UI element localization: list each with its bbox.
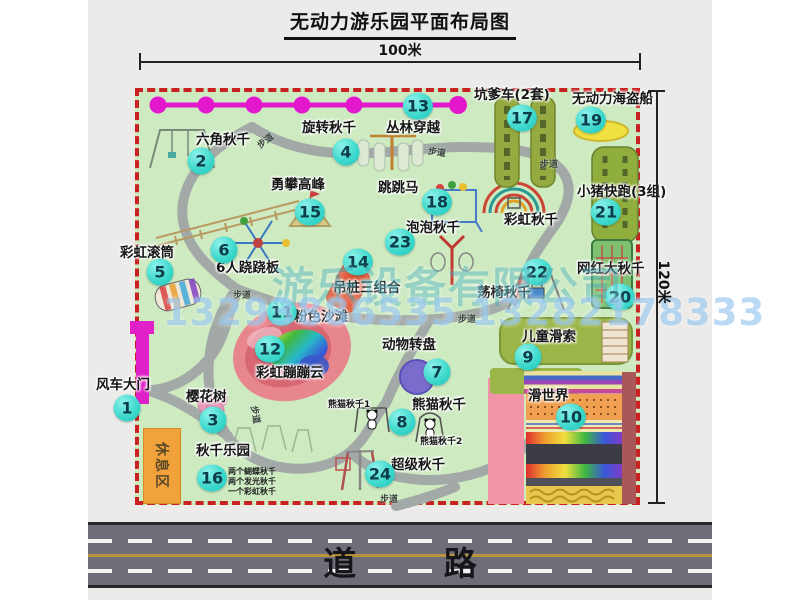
facility-label-15: 勇攀高峰 [271, 178, 325, 193]
dimension-width-label: 100米 [88, 40, 712, 60]
facility-label-21: 小猪快跑(3组) [577, 185, 666, 200]
marker-9: 9 [515, 344, 542, 371]
panda-swing-2-label: 熊猫秋千2 [420, 438, 462, 448]
rainbow-swing-label: 彩虹秋千 [504, 213, 558, 228]
dimension-width-tick-right [639, 53, 641, 70]
facility-label-17: 坑爹车(2套) [474, 88, 550, 103]
walkway-label: 步道 [427, 144, 447, 159]
marker-21: 21 [591, 199, 621, 226]
facility-label-12: 彩虹蹦蹦云 [256, 366, 324, 381]
dimension-height-tick-top [648, 90, 665, 92]
facility-label-16: 秋千乐园 [196, 444, 250, 459]
facility-label-4: 旋转秋千 [302, 121, 356, 136]
facility-label-23: 泡泡秋千 [406, 221, 460, 236]
marker-24: 24 [365, 461, 395, 488]
rest-area: 休息区 [143, 428, 181, 504]
swing-park-note-3: 一个彩虹秋千 [228, 486, 276, 497]
marker-2: 2 [188, 148, 215, 175]
dimension-height-line [656, 91, 658, 503]
marker-23: 23 [385, 229, 415, 256]
marker-3: 3 [200, 407, 227, 434]
marker-6: 6 [211, 237, 238, 264]
panda-swing-1-label: 熊猫秋千1 [328, 401, 370, 411]
marker-13: 13 [403, 93, 433, 120]
dimension-width-line [139, 61, 641, 63]
marker-7: 7 [424, 359, 451, 386]
page-title: 无动力游乐园平面布局图 [88, 7, 712, 40]
marker-5: 5 [147, 259, 174, 286]
walkway-label: 步道 [540, 157, 558, 170]
facility-label-19: 无动力海盗船 [572, 92, 653, 107]
road-label: 道 路 [88, 537, 712, 585]
marker-4: 4 [333, 139, 360, 166]
marker-17: 17 [507, 105, 537, 132]
marker-1: 1 [114, 395, 141, 422]
facility-label-2: 六角秋千 [196, 133, 250, 148]
facility-label-18: 跳跳马 [378, 181, 419, 196]
facility-label-1: 风车大门 [96, 378, 150, 393]
facility-label-24: 超级秋千 [391, 458, 445, 473]
marker-18: 18 [422, 189, 452, 216]
facility-label-3: 樱花树 [186, 390, 227, 405]
facility-label-8: 熊猫秋千 [412, 398, 466, 413]
marker-8: 8 [389, 409, 416, 436]
facility-label-10: 滑世界 [528, 389, 569, 404]
page-title-text: 无动力游乐园平面布局图 [284, 7, 516, 40]
marker-12: 12 [255, 336, 285, 363]
watermark-phone: 13293886535 13282178333 [163, 291, 765, 334]
marker-15: 15 [295, 199, 325, 226]
facility-label-13: 丛林穿越 [386, 121, 440, 136]
road: 道 路 [88, 522, 712, 588]
rest-area-label: 休息区 [152, 442, 172, 490]
screenshot-stage: 无动力游乐园平面布局图 100米 120米 [0, 0, 800, 600]
dimension-width-tick-left [139, 53, 141, 70]
facility-label-7: 动物转盘 [382, 338, 436, 353]
marker-10: 10 [556, 404, 586, 431]
marker-19: 19 [576, 107, 606, 134]
walkway-label: 步道 [380, 492, 398, 505]
dimension-height-tick-bottom [648, 502, 665, 504]
facility-label-5: 彩虹滚筒 [120, 246, 174, 261]
marker-16: 16 [197, 465, 227, 492]
